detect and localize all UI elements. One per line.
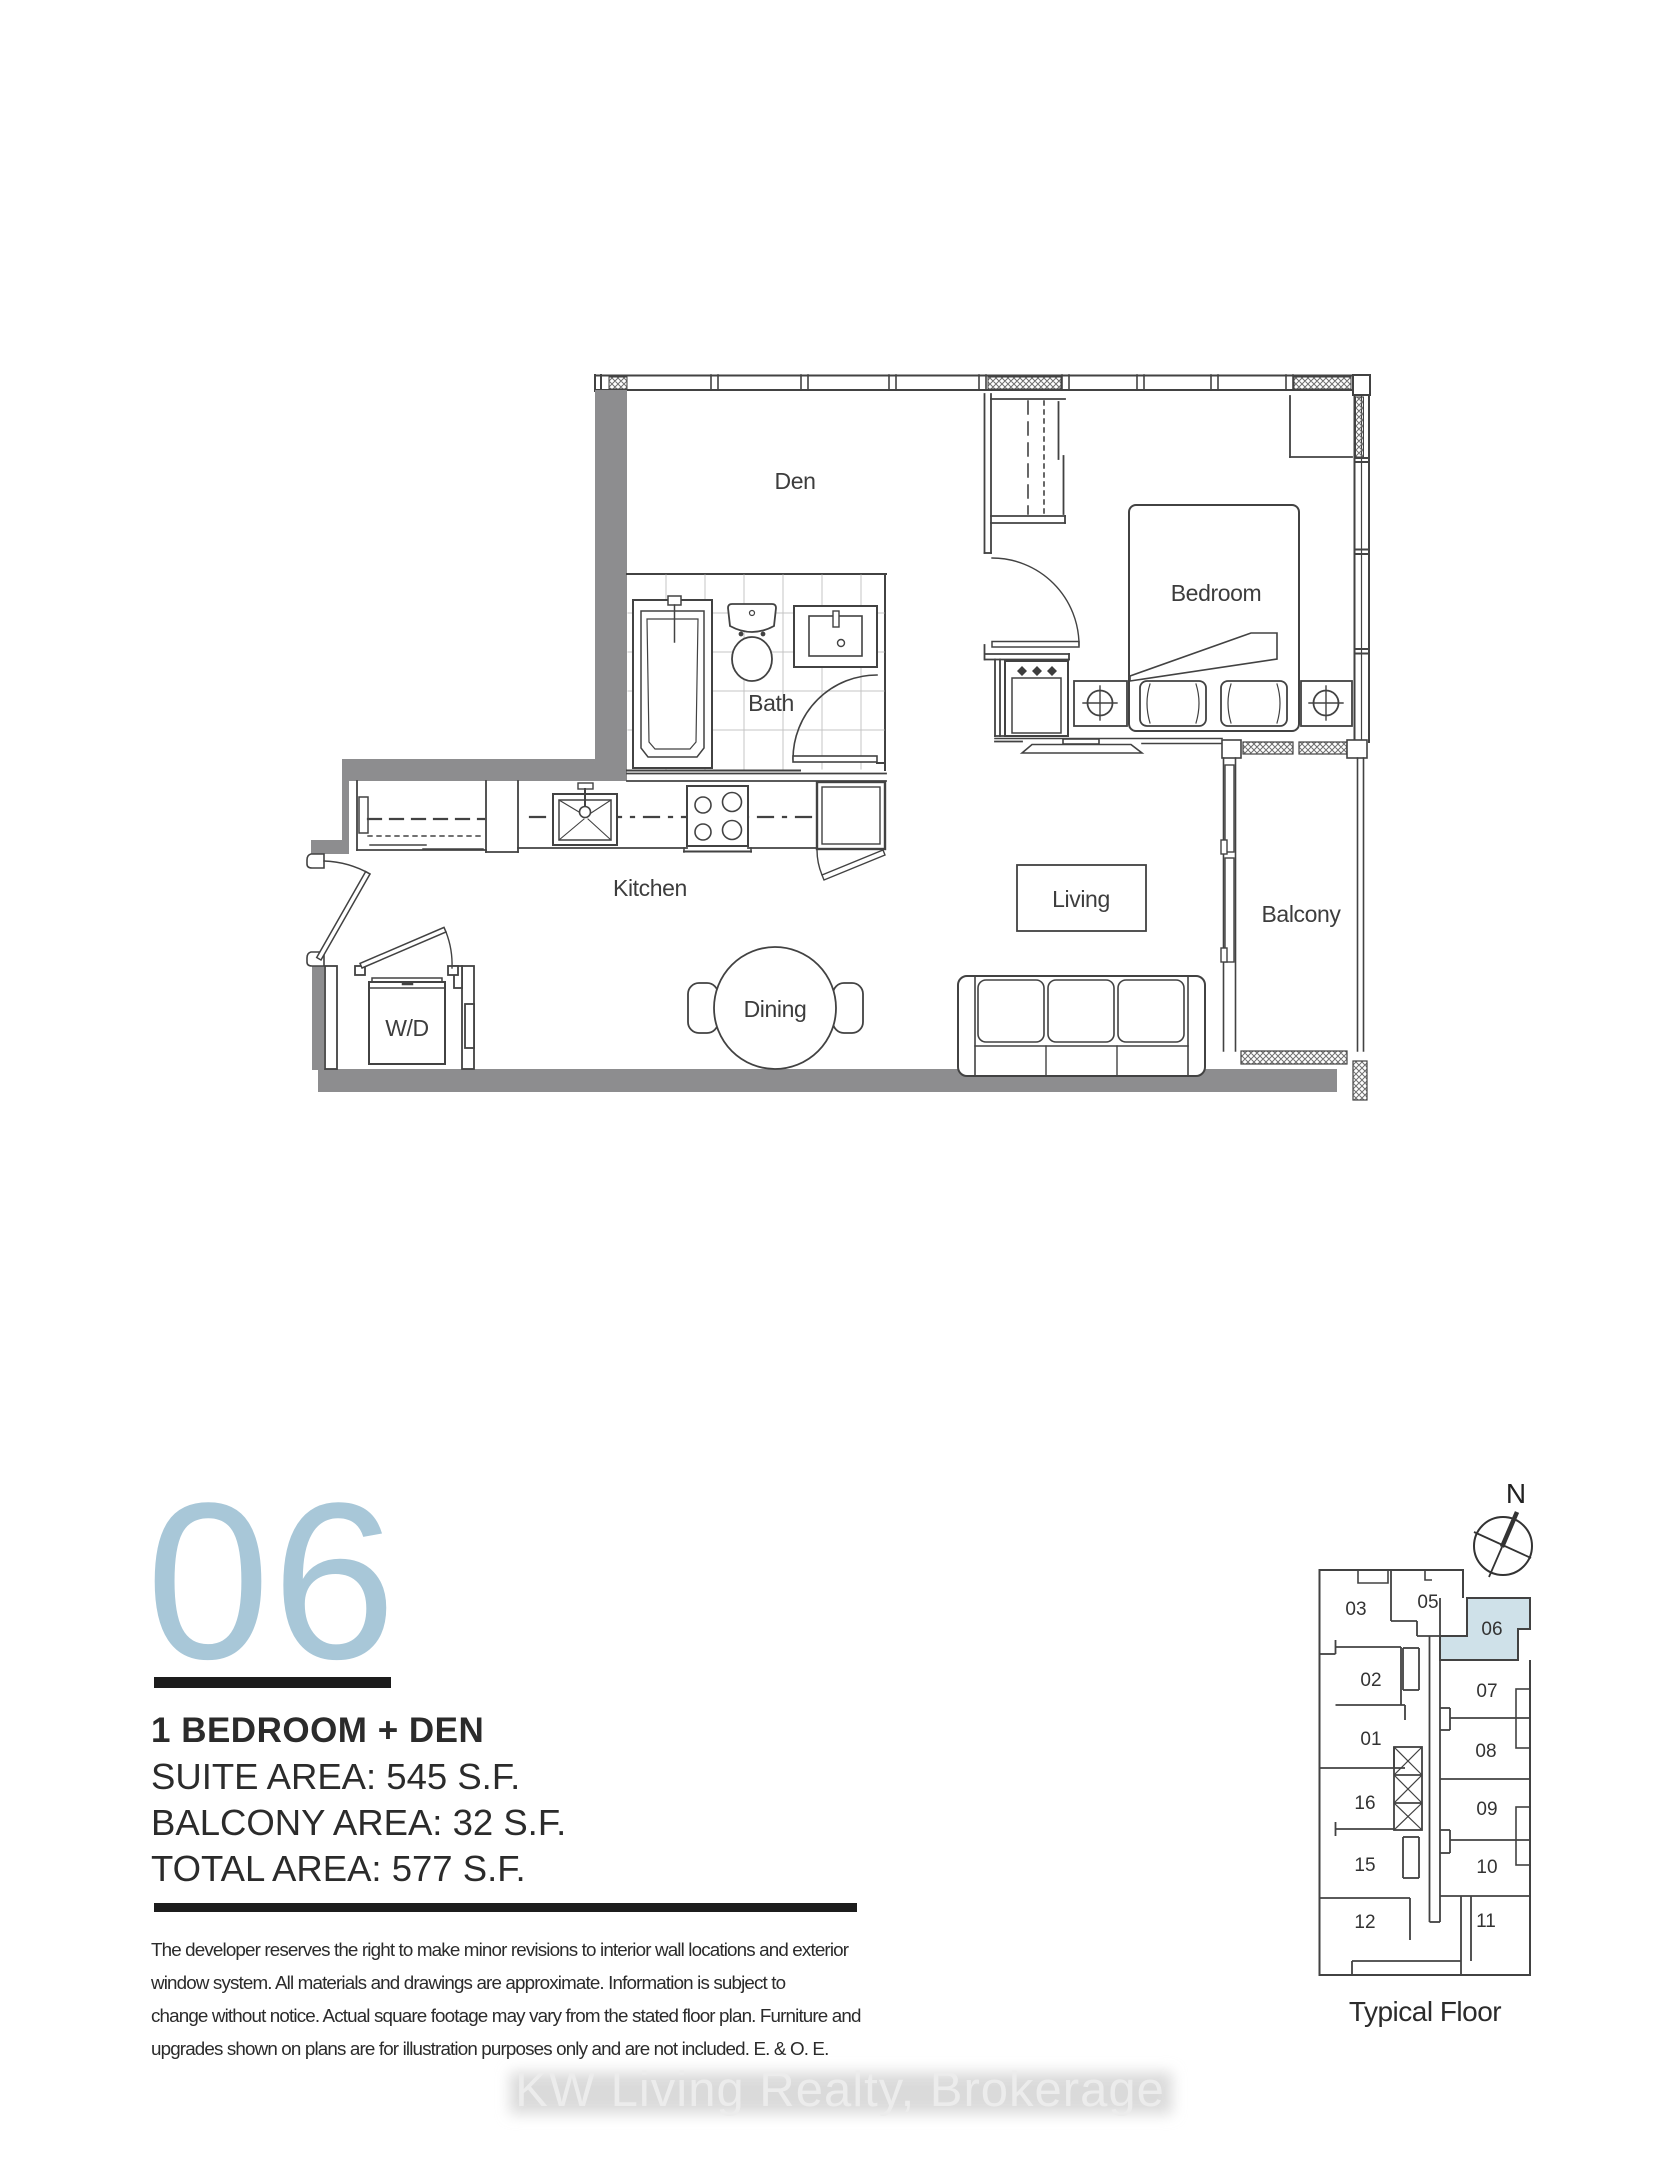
svg-text:Kitchen: Kitchen [613,875,687,901]
svg-text:Balcony: Balcony [1261,901,1341,927]
svg-text:06: 06 [1481,1619,1502,1640]
svg-text:10: 10 [1476,1857,1497,1878]
svg-text:16: 16 [1354,1793,1375,1814]
svg-text:Living: Living [1052,886,1110,912]
svg-text:08: 08 [1475,1741,1496,1762]
svg-text:window system. All materials a: window system. All materials and drawing… [150,1972,786,1993]
svg-text:W/D: W/D [385,1015,429,1041]
svg-text:03: 03 [1345,1599,1366,1620]
svg-text:KW Living Realty, Brokerage: KW Living Realty, Brokerage [515,2063,1165,2117]
svg-text:Bath: Bath [748,690,794,716]
svg-text:06: 06 [146,1457,398,1706]
svg-text:12: 12 [1354,1912,1375,1933]
svg-text:change without notice. Actual: change without notice. Actual square foo… [151,2005,861,2026]
svg-text:Typical Floor: Typical Floor [1349,1996,1501,2027]
svg-text:11: 11 [1476,1911,1496,1932]
svg-text:07: 07 [1476,1681,1497,1702]
svg-text:15: 15 [1354,1855,1375,1876]
svg-text:09: 09 [1476,1799,1497,1820]
svg-text:05: 05 [1417,1592,1438,1613]
svg-text:1 BEDROOM + DEN: 1 BEDROOM + DEN [151,1711,484,1750]
svg-text:The developer reserves the rig: The developer reserves the right to make… [151,1939,849,1960]
svg-text:BALCONY AREA: 32 S.F.: BALCONY AREA: 32 S.F. [151,1802,566,1843]
svg-text:02: 02 [1360,1670,1381,1691]
svg-text:TOTAL AREA: 577 S.F.: TOTAL AREA: 577 S.F. [151,1848,526,1889]
svg-text:SUITE AREA: 545 S.F.: SUITE AREA: 545 S.F. [151,1756,520,1797]
svg-text:Den: Den [775,468,816,494]
svg-text:N: N [1506,1478,1526,1509]
svg-text:Dining: Dining [744,996,807,1022]
svg-text:upgrades shown on plans are fo: upgrades shown on plans are for illustra… [151,2038,828,2059]
svg-text:01: 01 [1360,1729,1381,1750]
svg-text:Bedroom: Bedroom [1171,580,1262,606]
